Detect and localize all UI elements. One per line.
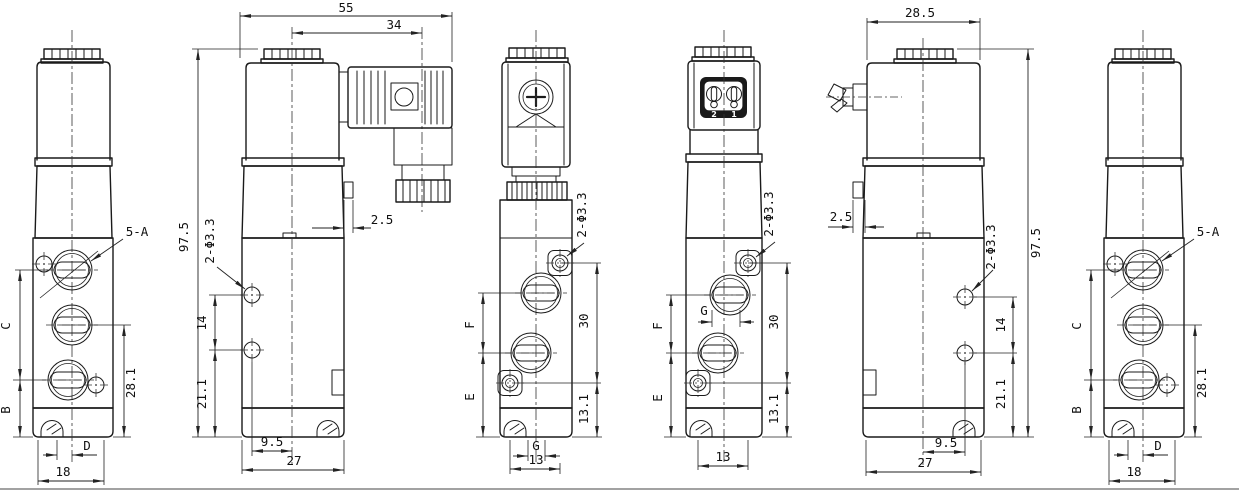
pin-label-2: 2 — [711, 110, 717, 119]
mid-body — [242, 166, 344, 238]
gland-step — [402, 165, 444, 180]
dim-label-34: 34 — [386, 17, 401, 32]
dim-label-55: 55 — [338, 0, 353, 15]
side-recess — [863, 370, 876, 395]
bottom-notch — [504, 421, 526, 438]
coil-band — [863, 158, 984, 166]
view-front-connector-face: F E 30 13.1 2-Φ3.3 G 13 — [462, 30, 602, 474]
gland-wing — [831, 99, 847, 112]
port-block — [242, 238, 344, 408]
dim-label-13-1: 13.1 — [576, 394, 591, 424]
dim-label-21-1: 21.1 — [993, 379, 1008, 409]
dim-label-g: G — [532, 438, 540, 453]
hole-callout-label: 2-Φ3.3 — [574, 192, 589, 237]
dim-label-c: C — [1069, 322, 1084, 330]
mounting-hole — [240, 338, 264, 362]
hole-leader — [756, 242, 775, 257]
dim-label-c: C — [0, 322, 13, 330]
hole-callout-label: 2-Φ3.3 — [983, 224, 998, 269]
dim-label-9-5: 9.5 — [261, 434, 284, 449]
mounting-hole — [953, 341, 977, 365]
dim-label-e: E — [650, 394, 665, 402]
dim-label-21-1: 21.1 — [194, 379, 209, 409]
hole-callout-label: 2-Φ3.3 — [761, 191, 776, 236]
dim-label-2-5: 2.5 — [371, 212, 394, 227]
dim-label-b: B — [0, 406, 13, 414]
dim-label-d: D — [83, 438, 91, 453]
dim-label-9-5: 9.5 — [935, 435, 958, 450]
dim-label-13: 13 — [528, 452, 543, 467]
dim-label-d: D — [1154, 438, 1162, 453]
dim-label-e: E — [462, 393, 477, 401]
drawing-sheet: 5-A C B 28.1 D 18 — [0, 0, 1239, 495]
bottom-notch — [690, 421, 712, 438]
dim-label-f: F — [650, 322, 665, 330]
view-rear-socket-face: 2 1 F E G 30 13.1 2-Φ3.3 13 — [650, 30, 792, 470]
dim-label-13: 13 — [715, 449, 730, 464]
side-recess — [332, 370, 344, 395]
base-plate — [242, 408, 344, 437]
dim-label-14: 14 — [194, 315, 209, 330]
port-opening — [704, 275, 756, 315]
knurled-nut — [894, 49, 956, 63]
callout-5a-label: 5-A — [126, 224, 149, 239]
dim-label-97-5: 97.5 — [1028, 228, 1043, 258]
mounting-hole — [953, 285, 977, 309]
coil-body — [246, 63, 339, 160]
bottom-notch — [317, 421, 339, 438]
knurled-nut — [692, 47, 754, 61]
dim-label-13-1: 13.1 — [766, 394, 781, 424]
port-opening — [505, 333, 557, 373]
dim-label-27: 27 — [917, 455, 932, 470]
knurled-nut — [506, 48, 568, 62]
dim-label-28-1: 28.1 — [1194, 368, 1209, 398]
dim-label-2-5: 2.5 — [830, 209, 853, 224]
top-tab — [917, 233, 930, 238]
port-block — [863, 238, 984, 408]
connector-leg — [394, 128, 452, 165]
side-boss — [344, 182, 353, 198]
hole-leader — [972, 270, 993, 291]
callout-5a-label: 5-A — [1197, 224, 1220, 239]
connector-screw — [395, 88, 413, 106]
port-opening — [515, 273, 567, 313]
hole-leader — [217, 267, 245, 289]
dim-label-30: 30 — [576, 313, 591, 328]
coil-body — [867, 63, 980, 160]
pin-label-1: 1 — [731, 110, 737, 119]
top-tab — [283, 233, 296, 238]
technical-drawing-canvas: 5-A C B 28.1 D 18 — [0, 0, 1239, 495]
dim-label-28-5: 28.5 — [905, 5, 935, 20]
hole-leader — [567, 243, 584, 256]
dim-label-g: G — [700, 303, 708, 318]
dim-label-18: 18 — [1126, 464, 1141, 479]
side-boss — [853, 182, 863, 198]
view-front-left: 5-A C B 28.1 D 18 — [0, 30, 149, 485]
dim-label-30: 30 — [766, 314, 781, 329]
mounting-hole — [240, 283, 264, 307]
dim-label-18: 18 — [55, 464, 70, 479]
view-side-gland: 28.5 97.5 2.5 2-Φ3.3 14 21.1 9.5 27 — [826, 5, 1043, 476]
gland-nut — [396, 180, 450, 202]
dim-label-14: 14 — [993, 317, 1008, 332]
coil-band — [242, 158, 344, 166]
hole-callout-label: 2-Φ3.3 — [202, 218, 217, 263]
dim-label-28-1: 28.1 — [123, 368, 138, 398]
view-side-connector: 55 34 97.5 2-Φ3.3 14 21.1 2.5 9.5 27 — [176, 0, 452, 474]
dim-label-b: B — [1069, 406, 1084, 414]
port-opening — [692, 333, 744, 373]
dim-label-f: F — [462, 321, 477, 329]
dim-label-97-5: 97.5 — [176, 222, 191, 252]
dim-label-27: 27 — [286, 453, 301, 468]
view-front-right: 5-A C B 28.1 D 18 — [1069, 30, 1220, 485]
